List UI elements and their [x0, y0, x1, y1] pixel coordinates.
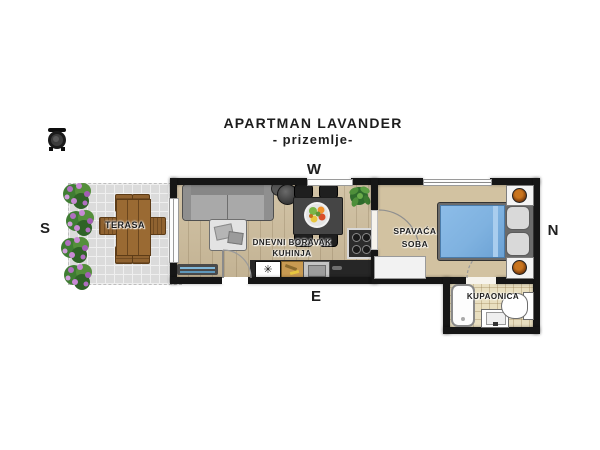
stove [347, 228, 373, 259]
fridge-snowflake-icon: ✳ [263, 264, 272, 276]
tv-bench [177, 264, 218, 275]
wall-top-mid [351, 178, 423, 185]
terrace-door-line [173, 199, 174, 262]
sink-faucet [493, 322, 498, 326]
fruit-plate-icon [303, 201, 331, 229]
tv-bench-stripe [180, 271, 215, 273]
coffee-table [209, 219, 247, 251]
bed-blanket-fold [493, 206, 498, 257]
grill-icon [45, 126, 69, 152]
living-kitchen-label-line1: DNEVNI BORAVAK [252, 238, 332, 247]
entrance-door-arc [220, 249, 252, 281]
sofa-back [183, 185, 273, 195]
sink-basin [308, 265, 326, 277]
wall-bottom-living-left [170, 277, 222, 284]
flower-bush-icon [62, 262, 96, 291]
bed-pillow [506, 232, 530, 256]
bedroom-door-opening [371, 210, 378, 250]
wall-bathroom-left [443, 277, 450, 334]
terrace-glass-door [169, 198, 179, 263]
wall-top-left [170, 178, 307, 185]
bedroom-label-line2: SOBA [384, 239, 446, 249]
compass-east: E [302, 288, 330, 305]
table-lamp [512, 260, 527, 275]
stove-burner [362, 245, 371, 254]
compass-south: S [31, 220, 59, 237]
cabinet-handle [332, 266, 342, 270]
tv-bench-stripe [180, 267, 215, 269]
stove-burner [352, 233, 361, 242]
sofa-armrest [183, 185, 191, 220]
stove-burner [362, 233, 371, 242]
bedroom-window [423, 179, 492, 186]
living-kitchen-label-line2: KUHINJA [252, 249, 332, 258]
bedroom-label-line1: SPAVAĆA [384, 226, 446, 236]
wall-right [533, 178, 540, 334]
floor-plan: APARTMAN LAVANDER - prizemlje- W E S N [0, 0, 600, 450]
coffee-table-item [227, 231, 244, 245]
wall-bottom-living-right [248, 277, 372, 284]
bathtub-drain [461, 317, 465, 321]
living-window [307, 179, 353, 186]
cutting-board-item [290, 270, 299, 275]
flower-bush-icon [61, 181, 95, 210]
compass-north: N [539, 222, 567, 239]
stove-burner [352, 245, 361, 254]
bed-pillow [506, 206, 530, 230]
compass-west: W [300, 161, 328, 178]
plant-icon [347, 183, 373, 210]
terrace-label: TERASA [88, 220, 162, 230]
bathroom-label: KUPAONICA [457, 292, 529, 301]
bed-mattress [440, 205, 505, 258]
sofa-cushion-divider [227, 195, 228, 220]
wall-divider-top [371, 178, 378, 210]
page-subtitle: - prizemlje- [163, 132, 463, 147]
bedroom-window-line [424, 182, 491, 183]
wardrobe [374, 256, 426, 279]
bathtub [451, 284, 475, 327]
wall-left-top [170, 178, 177, 198]
table-lamp [512, 188, 527, 203]
sofa [182, 184, 274, 221]
flower-bush-icon [59, 235, 93, 264]
wall-bathroom-bottom [443, 327, 540, 334]
page-title: APARTMAN LAVANDER [163, 115, 463, 131]
